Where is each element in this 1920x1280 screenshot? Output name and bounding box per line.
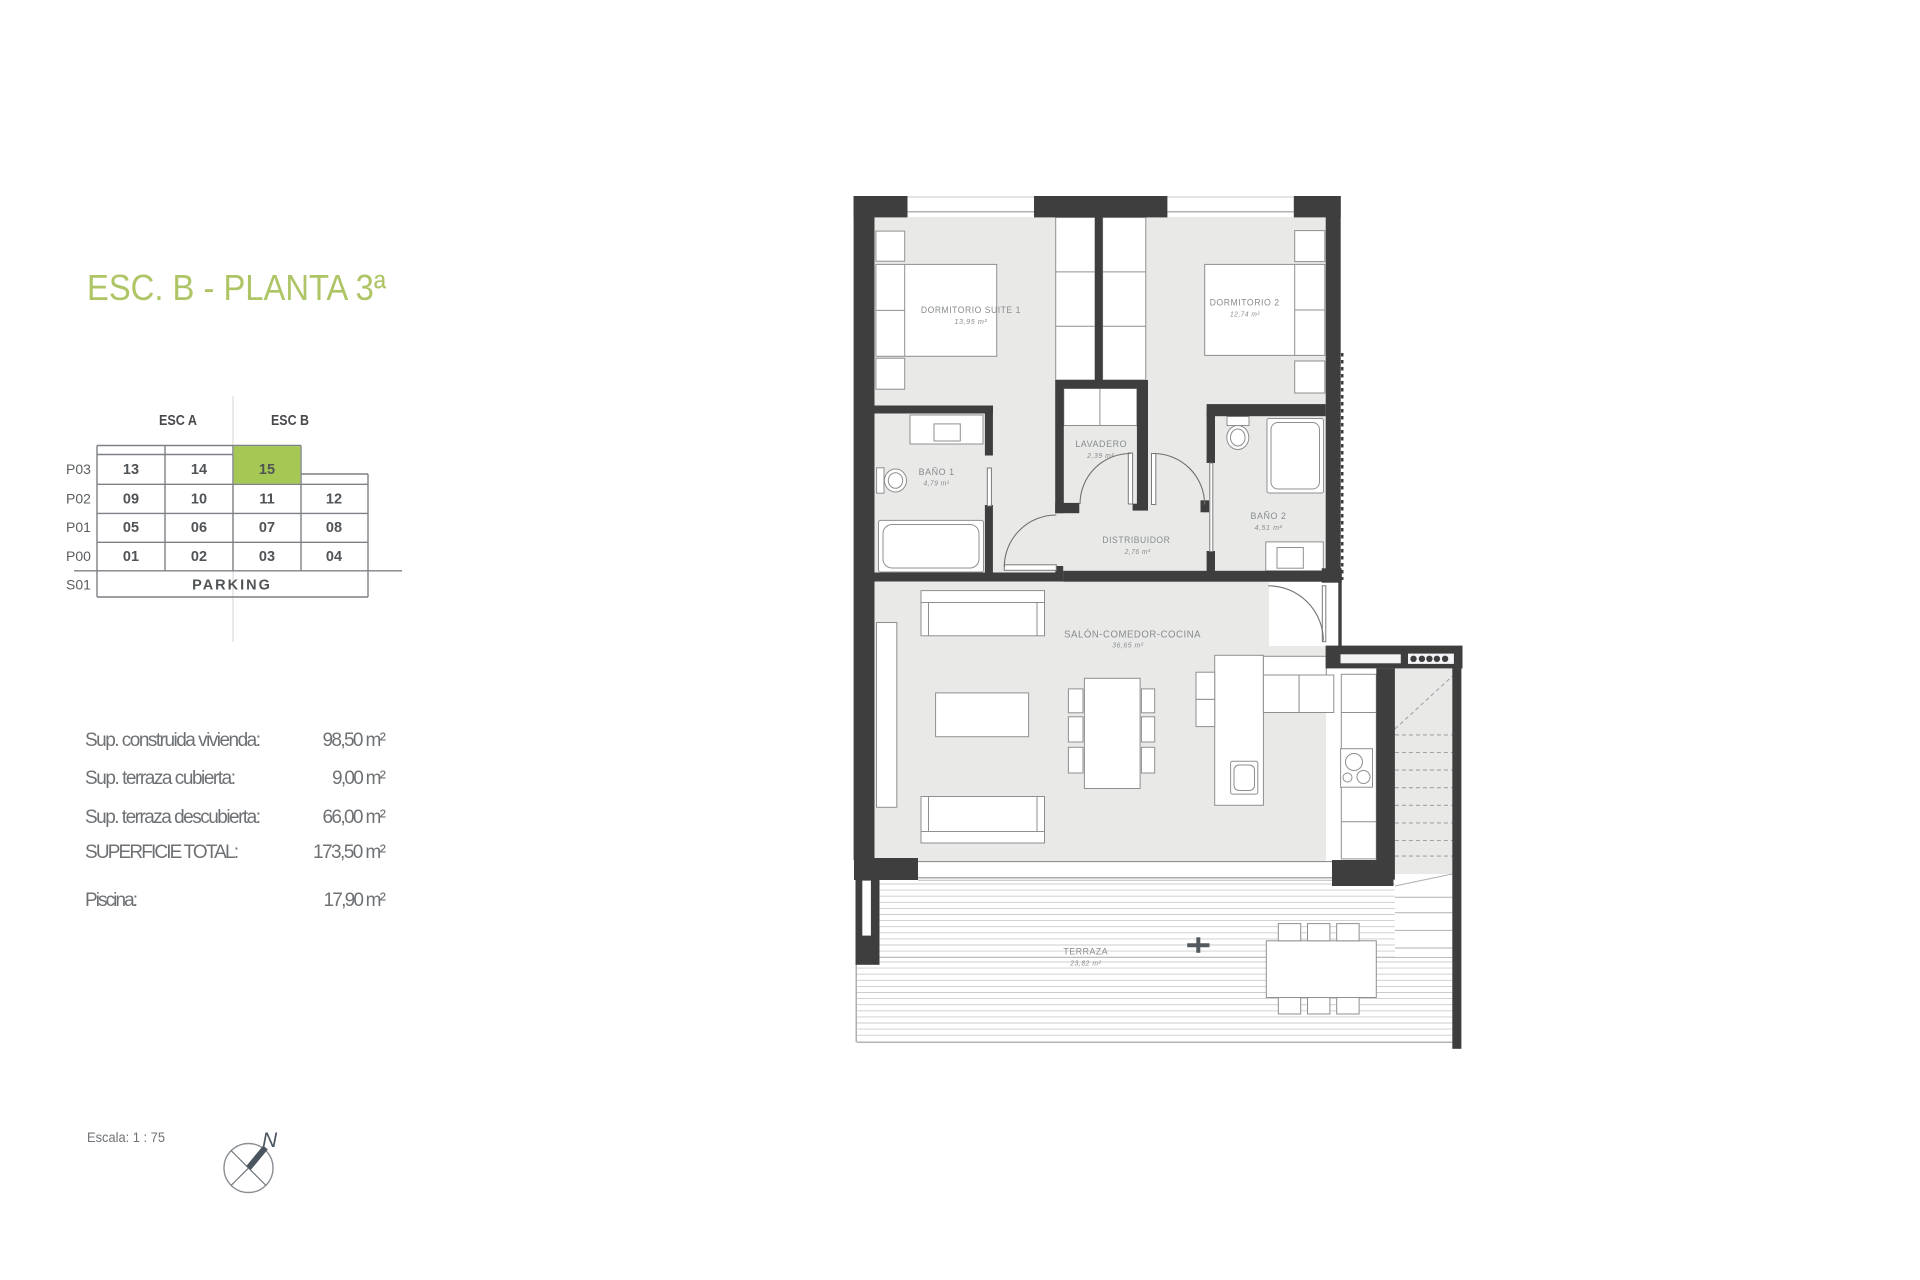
- svg-text:LAVADERO: LAVADERO: [1075, 439, 1127, 450]
- svg-text:4,79 m²: 4,79 m²: [924, 479, 950, 488]
- svg-text:DORMITORIO SUITE 1: DORMITORIO SUITE 1: [921, 305, 1021, 316]
- svg-text:TERRAZA: TERRAZA: [1063, 947, 1108, 958]
- svg-text:03: 03: [259, 549, 275, 565]
- svg-text:Escala: 1 : 75: Escala: 1 : 75: [87, 1130, 165, 1145]
- svg-text:P00: P00: [66, 548, 91, 564]
- svg-text:05: 05: [123, 520, 139, 536]
- svg-text:Sup. terraza descubierta:: Sup. terraza descubierta:: [85, 807, 261, 828]
- svg-text:SALÓN-COMEDOR-COCINA: SALÓN-COMEDOR-COCINA: [1064, 628, 1201, 641]
- svg-text:BAÑO 2: BAÑO 2: [1251, 511, 1287, 522]
- svg-text:P02: P02: [66, 491, 91, 507]
- svg-text:ESC. B - PLANTA 3ª: ESC. B - PLANTA 3ª: [87, 267, 387, 308]
- svg-text:36,65 m²: 36,65 m²: [1112, 641, 1143, 650]
- svg-text:BAÑO 1: BAÑO 1: [919, 467, 955, 478]
- svg-text:2,39 m²: 2,39 m²: [1086, 451, 1114, 460]
- svg-text:23,82 m²: 23,82 m²: [1069, 959, 1101, 968]
- svg-text:17,90 m²: 17,90 m²: [324, 890, 387, 911]
- svg-text:04: 04: [326, 549, 342, 565]
- svg-text:06: 06: [191, 520, 207, 536]
- svg-text:173,50 m²: 173,50 m²: [313, 842, 386, 863]
- svg-text:11: 11: [259, 492, 274, 508]
- svg-text:ESC A: ESC A: [159, 413, 197, 429]
- svg-text:09: 09: [123, 492, 139, 508]
- svg-text:P01: P01: [66, 519, 91, 535]
- svg-text:13: 13: [123, 462, 139, 478]
- svg-text:07: 07: [259, 520, 275, 536]
- svg-text:10: 10: [191, 492, 207, 508]
- svg-text:Piscina:: Piscina:: [85, 890, 138, 911]
- svg-text:P03: P03: [66, 461, 91, 477]
- svg-text:12: 12: [326, 492, 342, 508]
- svg-text:15: 15: [259, 462, 275, 478]
- svg-text:DORMITORIO 2: DORMITORIO 2: [1210, 298, 1280, 309]
- svg-text:66,00 m²: 66,00 m²: [323, 807, 387, 828]
- svg-text:08: 08: [326, 520, 342, 536]
- svg-text:Sup. terraza cubierta:: Sup. terraza cubierta:: [85, 768, 236, 789]
- svg-text:01: 01: [123, 549, 139, 565]
- svg-text:02: 02: [191, 549, 207, 565]
- svg-text:4,51 m²: 4,51 m²: [1255, 523, 1283, 532]
- svg-text:N: N: [262, 1129, 278, 1152]
- svg-text:13,95 m²: 13,95 m²: [954, 317, 987, 326]
- svg-text:9,00 m²: 9,00 m²: [332, 768, 386, 789]
- svg-text:DISTRIBUIDOR: DISTRIBUIDOR: [1102, 535, 1170, 546]
- svg-text:SUPERFICIE TOTAL:: SUPERFICIE TOTAL:: [85, 842, 239, 863]
- svg-text:Sup. construida vivienda:: Sup. construida vivienda:: [85, 730, 261, 751]
- svg-text:14: 14: [191, 462, 207, 478]
- svg-text:12,74 m²: 12,74 m²: [1230, 310, 1260, 319]
- svg-text:98,50 m²: 98,50 m²: [323, 730, 387, 751]
- svg-text:S01: S01: [66, 577, 91, 593]
- svg-text:PARKING: PARKING: [192, 578, 272, 594]
- svg-text:2,76 m²: 2,76 m²: [1124, 547, 1151, 556]
- svg-text:ESC B: ESC B: [271, 413, 309, 429]
